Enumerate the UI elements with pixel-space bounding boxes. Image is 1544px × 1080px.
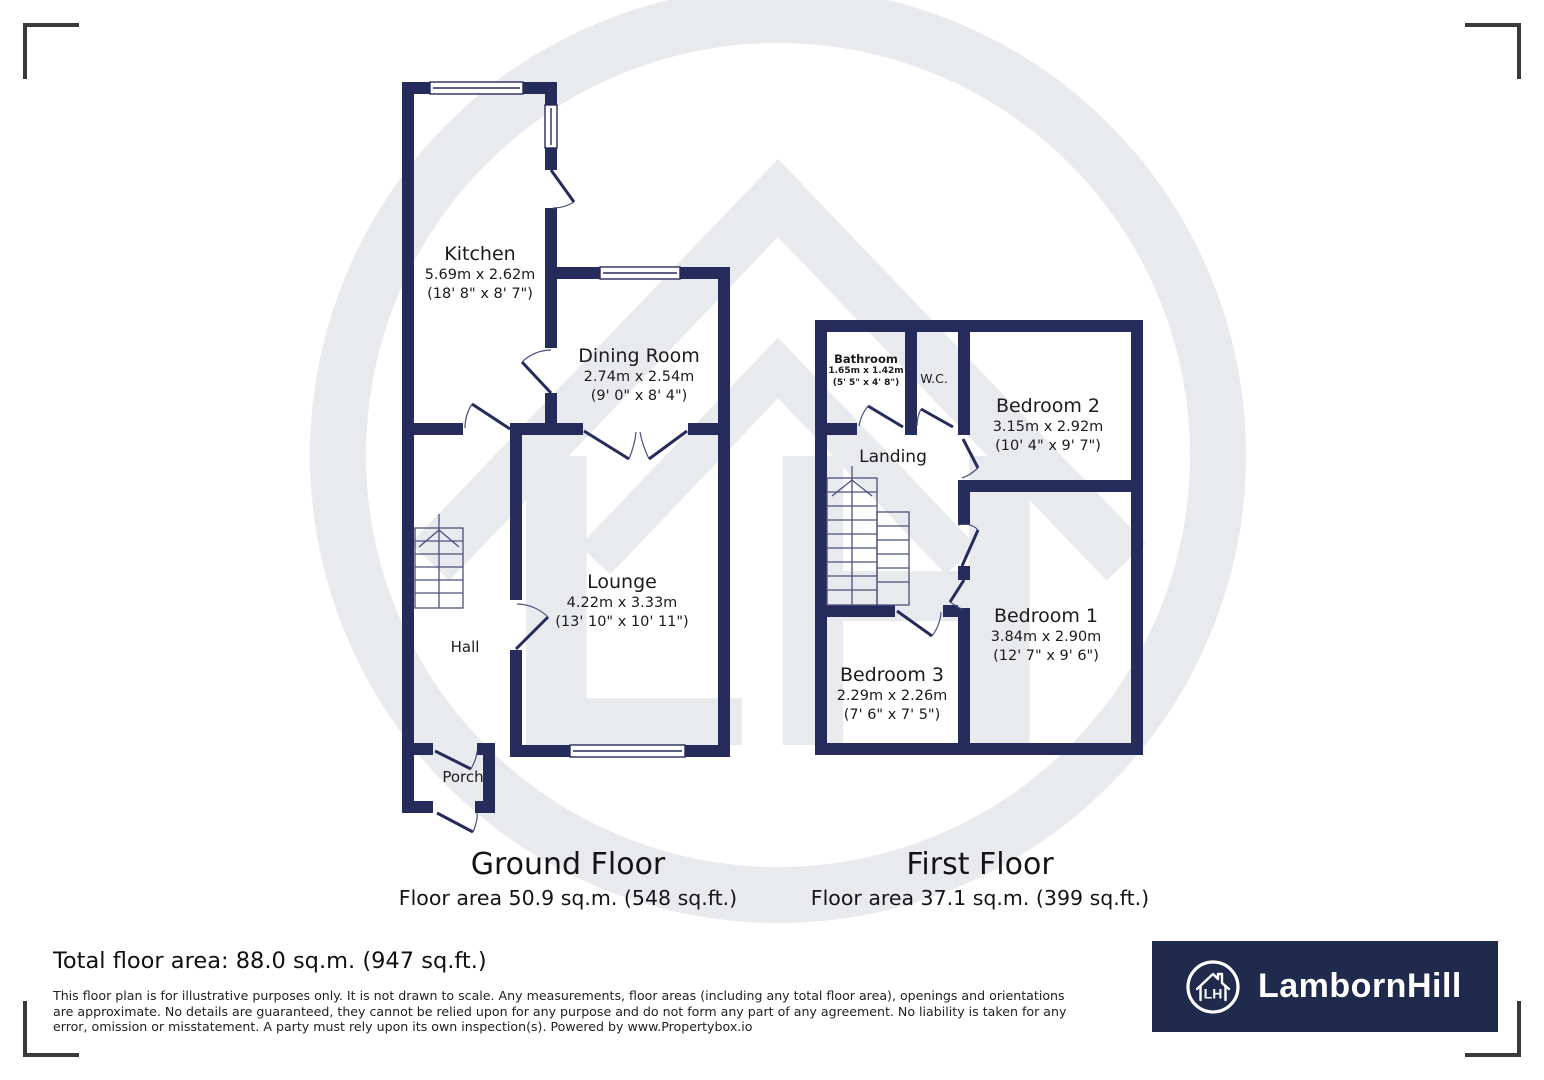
room-label-bedroom3: Bedroom 3 2.29m x 2.26m (7' 6" x 7' 5") bbox=[837, 664, 948, 724]
bedroom3-name: Bedroom 3 bbox=[837, 664, 948, 687]
ground-floor-area: Floor area 50.9 sq.m. (548 sq.ft.) bbox=[399, 886, 737, 910]
wc-name: W.C. bbox=[920, 371, 948, 386]
bathroom-dims-imperial: (5' 5" x 4' 8") bbox=[828, 378, 903, 390]
bedroom2-dims-imperial: (10' 4" x 9' 7") bbox=[993, 437, 1104, 456]
first-floor-area: Floor area 37.1 sq.m. (399 sq.ft.) bbox=[811, 886, 1149, 910]
bedroom1-dims-metric: 3.84m x 2.90m bbox=[991, 628, 1102, 647]
room-label-landing: Landing bbox=[859, 447, 927, 467]
ground-floor-stairs bbox=[415, 514, 463, 608]
first-floor-title: First Floor bbox=[906, 847, 1053, 882]
brand-name: LambornHill bbox=[1258, 967, 1462, 1006]
ground-floor-title: Ground Floor bbox=[471, 847, 666, 882]
room-label-bedroom1: Bedroom 1 3.84m x 2.90m (12' 7" x 9' 6") bbox=[991, 605, 1102, 665]
bedroom1-name: Bedroom 1 bbox=[991, 605, 1102, 628]
floorplan-page: LH bbox=[0, 0, 1544, 1080]
kitchen-name: Kitchen bbox=[425, 243, 536, 266]
bathroom-name: Bathroom bbox=[828, 352, 903, 366]
lounge-dims-metric: 4.22m x 3.33m bbox=[555, 594, 688, 613]
bedroom3-dims-metric: 2.29m x 2.26m bbox=[837, 687, 948, 706]
bedroom2-dims-metric: 3.15m x 2.92m bbox=[993, 418, 1104, 437]
dining-dims-imperial: (9' 0" x 8' 4") bbox=[578, 387, 699, 406]
lounge-dims-imperial: (13' 10" x 10' 11") bbox=[555, 613, 688, 632]
room-label-dining: Dining Room 2.74m x 2.54m (9' 0" x 8' 4"… bbox=[578, 345, 699, 405]
first-floor-stairs bbox=[827, 466, 909, 605]
room-label-lounge: Lounge 4.22m x 3.33m (13' 10" x 10' 11") bbox=[555, 571, 688, 631]
room-label-porch: Porch bbox=[442, 768, 483, 786]
total-floor-area: Total floor area: 88.0 sq.m. (947 sq.ft.… bbox=[53, 948, 487, 974]
kitchen-dims-metric: 5.69m x 2.62m bbox=[425, 266, 536, 285]
landing-name: Landing bbox=[859, 447, 927, 467]
bathroom-dims-metric: 1.65m x 1.42m bbox=[828, 366, 903, 378]
porch-name: Porch bbox=[442, 768, 483, 786]
room-label-hall: Hall bbox=[451, 638, 480, 656]
dining-name: Dining Room bbox=[578, 345, 699, 368]
dining-dims-metric: 2.74m x 2.54m bbox=[578, 368, 699, 387]
room-label-bathroom: Bathroom 1.65m x 1.42m (5' 5" x 4' 8") bbox=[828, 352, 903, 389]
lounge-name: Lounge bbox=[555, 571, 688, 594]
hall-name: Hall bbox=[451, 638, 480, 656]
room-label-wc: W.C. bbox=[920, 371, 948, 386]
bedroom2-name: Bedroom 2 bbox=[993, 395, 1104, 418]
logo-monogram: LH bbox=[1204, 985, 1223, 1001]
bedroom1-dims-imperial: (12' 7" x 9' 6") bbox=[991, 647, 1102, 666]
floorplan-drawing bbox=[0, 0, 1544, 1080]
kitchen-dims-imperial: (18' 8" x 8' 7") bbox=[425, 285, 536, 304]
room-label-kitchen: Kitchen 5.69m x 2.62m (18' 8" x 8' 7") bbox=[425, 243, 536, 303]
disclaimer-text: This floor plan is for illustrative purp… bbox=[53, 988, 1075, 1035]
house-icon: LH bbox=[1183, 957, 1243, 1017]
room-label-bedroom2: Bedroom 2 3.15m x 2.92m (10' 4" x 9' 7") bbox=[993, 395, 1104, 455]
lambornhill-logo: LH LambornHill bbox=[1152, 941, 1498, 1032]
bedroom3-dims-imperial: (7' 6" x 7' 5") bbox=[837, 706, 948, 725]
